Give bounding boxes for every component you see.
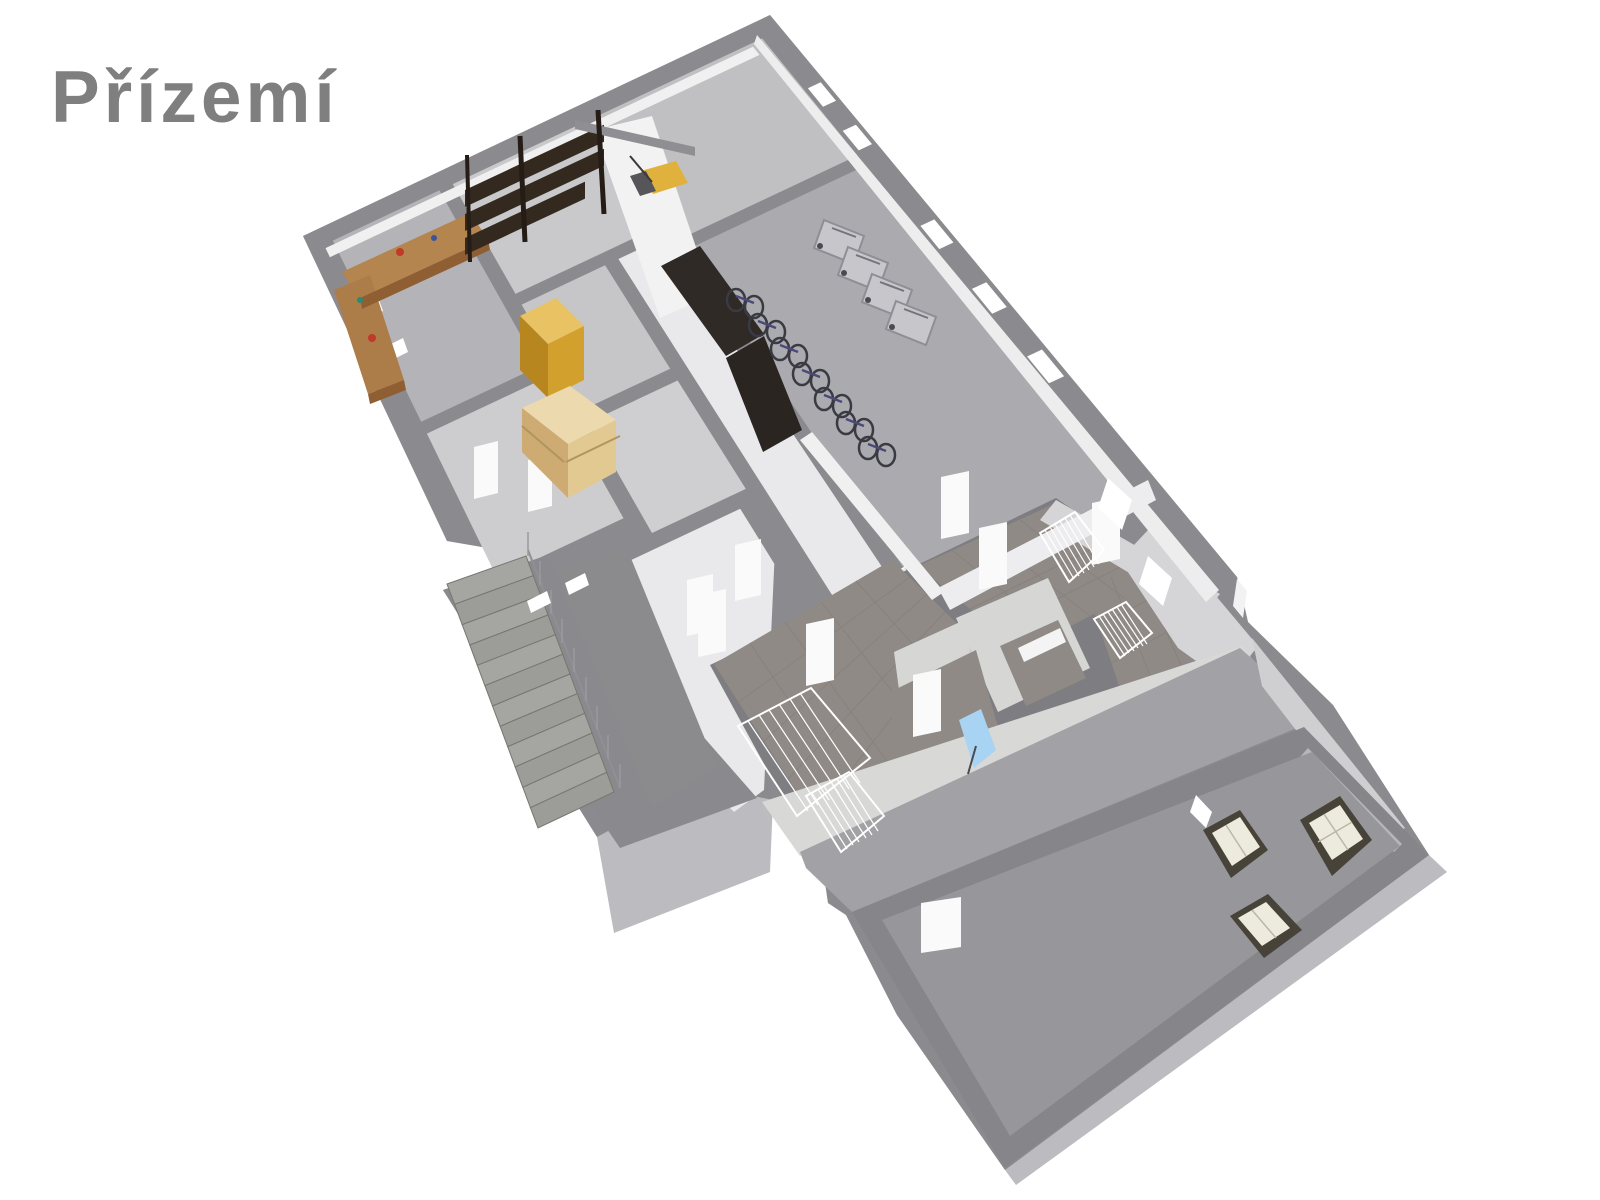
- svg-text:Přízemí: Přízemí: [51, 57, 339, 138]
